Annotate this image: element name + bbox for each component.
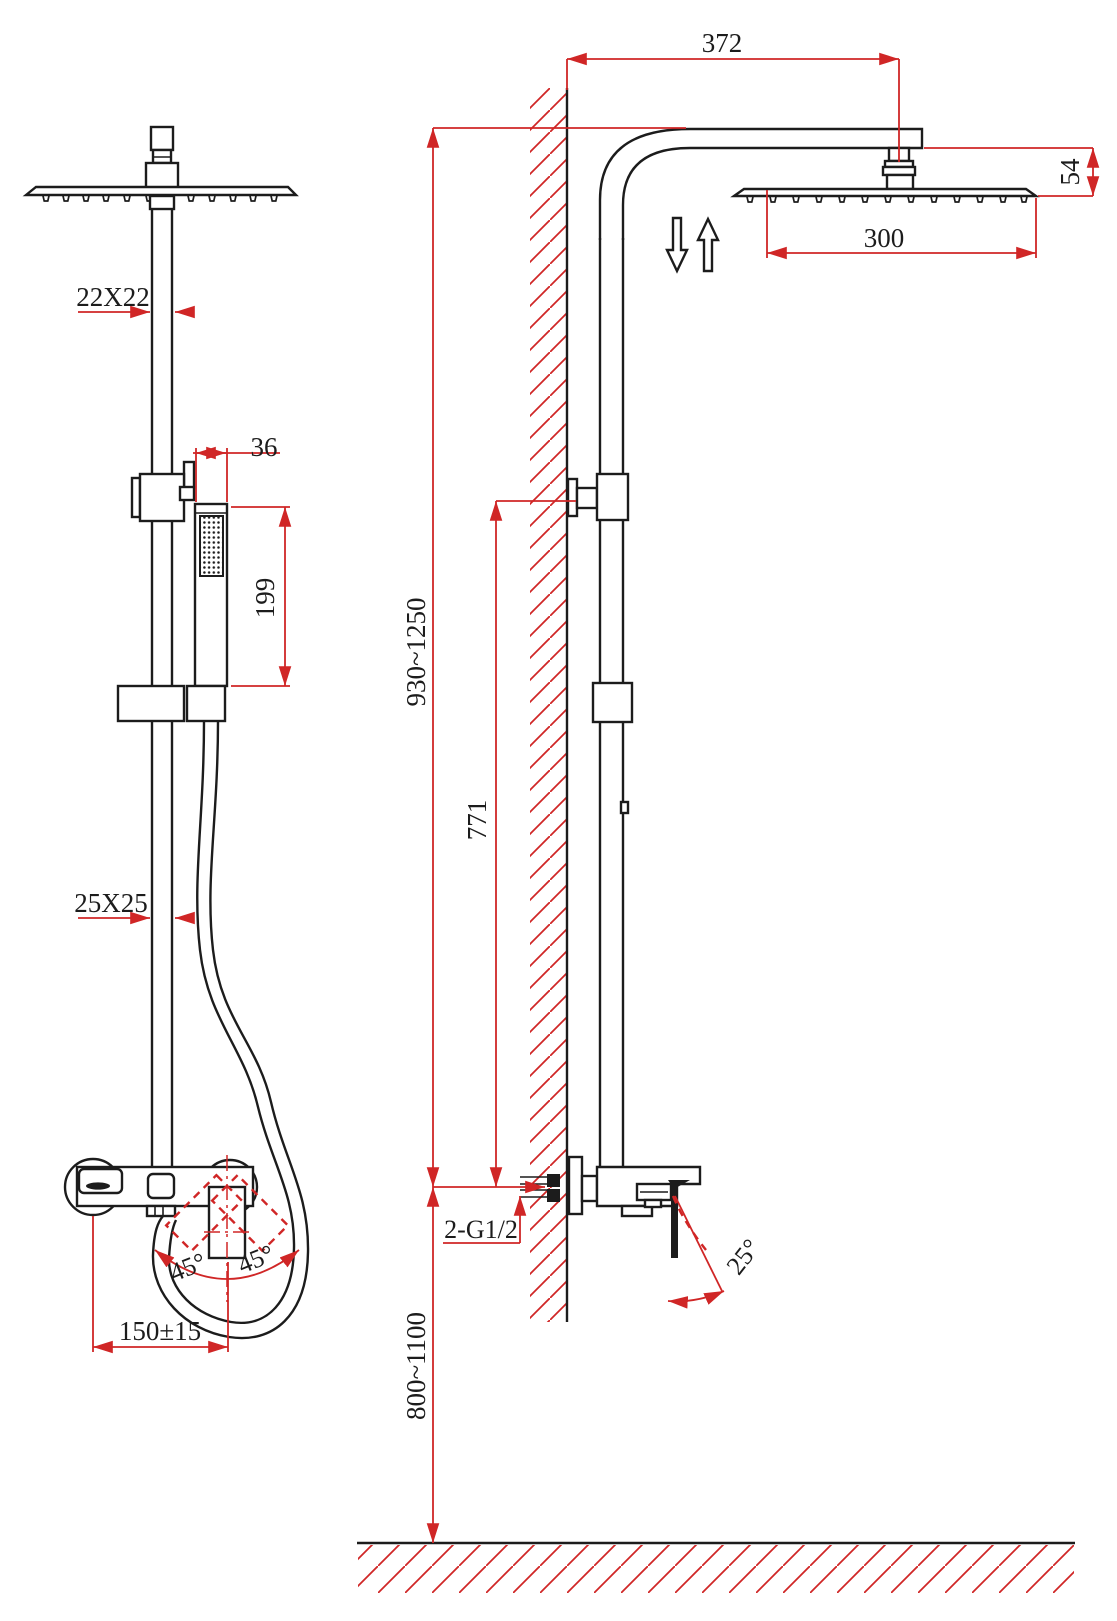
dim-handle-tilt: 25° bbox=[721, 1233, 766, 1280]
pipe-detail bbox=[621, 802, 628, 813]
wand-holder bbox=[187, 686, 225, 721]
dim-riser-height: 930~1250 bbox=[401, 597, 431, 706]
top-pipe-nut bbox=[151, 127, 173, 150]
dim-mixer-height: 800~1100 bbox=[401, 1312, 431, 1420]
dimensions bbox=[78, 59, 1093, 1543]
hand-shower-face bbox=[200, 516, 223, 576]
dim-arm-reach: 372 bbox=[702, 28, 743, 58]
technical-drawing-page: 372 54 300 22X22 36 199 930~1250 771 25X… bbox=[0, 0, 1117, 1621]
bracket-knob bbox=[180, 487, 194, 500]
wall-hatch bbox=[530, 88, 567, 1322]
dim-hand-shower-width: 36 bbox=[251, 432, 278, 462]
diverter-knob bbox=[148, 1174, 174, 1198]
bracket-stem bbox=[577, 488, 597, 508]
shower-column-drawing: 372 54 300 22X22 36 199 930~1250 771 25X… bbox=[0, 0, 1117, 1621]
dim-hand-shower-length: 199 bbox=[250, 578, 280, 619]
rain-head-front bbox=[26, 187, 296, 195]
hose-outlet-stub bbox=[147, 1206, 175, 1216]
hand-shower-hook bbox=[184, 462, 194, 488]
dim-center-distance: 150±15 bbox=[119, 1316, 201, 1346]
inlet-connection bbox=[547, 1174, 560, 1187]
side-view bbox=[520, 129, 1036, 1258]
down-arrow-icon bbox=[667, 218, 687, 271]
mixer-stem bbox=[582, 1176, 597, 1201]
up-arrow-icon bbox=[698, 219, 718, 271]
wall-section bbox=[530, 88, 567, 1322]
slider-block-side bbox=[593, 683, 632, 722]
spout-opening bbox=[86, 1182, 110, 1189]
front-view bbox=[26, 127, 308, 1338]
dim-upper-pipe: 22X22 bbox=[76, 282, 150, 312]
slider-holder bbox=[118, 686, 184, 721]
dim-lower-pipe: 25X25 bbox=[74, 888, 148, 918]
wall-bracket-front bbox=[140, 474, 184, 521]
wall-bracket-side bbox=[597, 474, 628, 520]
head-connector-side bbox=[887, 175, 913, 189]
bracket-flange bbox=[568, 479, 577, 516]
floor-hatch bbox=[358, 1545, 1074, 1593]
inlet-connection bbox=[547, 1189, 560, 1202]
head-connector bbox=[146, 163, 178, 188]
floor-section bbox=[357, 1543, 1075, 1593]
dim-head-width: 300 bbox=[864, 223, 905, 253]
dim-head-drop: 54 bbox=[1055, 158, 1085, 186]
escutcheon-side bbox=[569, 1157, 582, 1214]
rain-head-side bbox=[734, 189, 1036, 196]
below-head-collar bbox=[150, 196, 174, 209]
dim-bracket-height: 771 bbox=[462, 800, 492, 841]
dim-inlet-thread: 2-G1/2 bbox=[444, 1215, 518, 1244]
